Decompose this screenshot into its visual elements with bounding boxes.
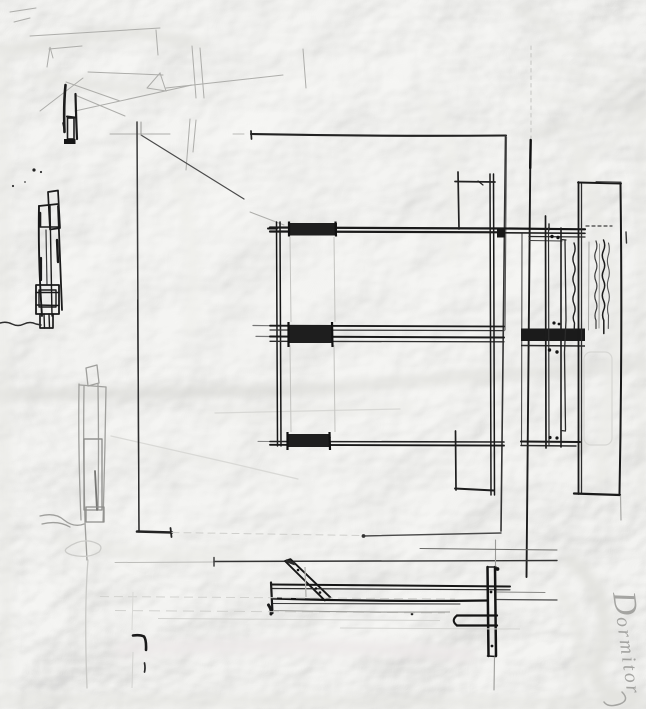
- svg-text:D: D: [605, 588, 644, 618]
